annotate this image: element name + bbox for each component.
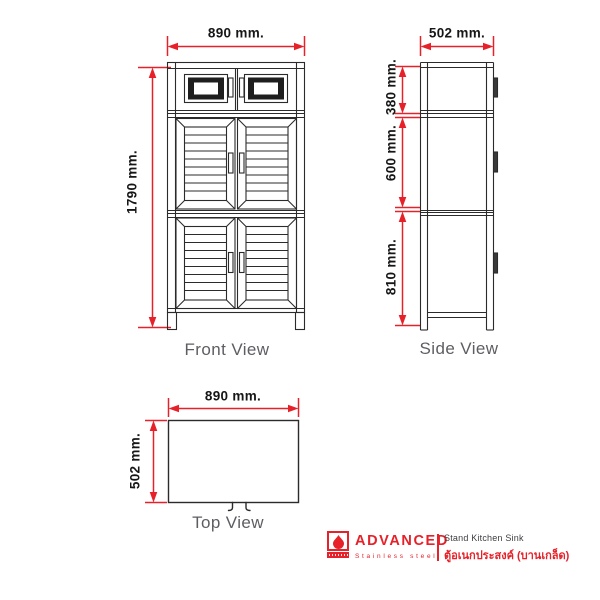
technical-drawing-page: 890 mm. 1790 mm. 502 mm. 380 mm. 600 mm.… (0, 0, 600, 600)
brand-name: ADVANCED (355, 533, 449, 549)
side-handle-lower (494, 253, 498, 273)
middle-door-handle-right (240, 153, 245, 173)
flame-icon (332, 534, 345, 549)
top-depth-dimension-arrow (145, 421, 167, 503)
product-text-block: Stand Kitchen Sink ตู้อเนกประสงค์ (บานเก… (444, 533, 569, 564)
louver-door-lower-left (176, 218, 235, 309)
brand-logo (327, 531, 349, 551)
side-lower-dimension: 810 mm. (384, 239, 399, 295)
front-height-dimension-arrow (138, 68, 171, 328)
brand-tagline: Stainless steel (355, 553, 449, 560)
glass-window-left (185, 75, 228, 103)
footer-divider (437, 534, 439, 561)
product-name-th: ตู้อเนกประสงค์ (บานเกล็ด) (444, 546, 569, 564)
lower-door-handle-right (240, 253, 245, 273)
brand-text-block: ADVANCED Stainless steel (355, 533, 449, 560)
brand-logo-bar (327, 552, 349, 558)
side-cabinet-outline (421, 63, 498, 331)
side-section-dimension-arrows (395, 67, 421, 326)
side-handle-middle (494, 152, 498, 172)
front-cabinet-outline (168, 63, 305, 330)
front-width-dimension: 890 mm. (208, 26, 264, 41)
front-leg-right (296, 313, 305, 330)
top-view-door-handles (229, 503, 251, 511)
top-view-label: Top View (192, 513, 264, 533)
louver-door-middle-right (238, 119, 297, 210)
lower-door-handle-left (229, 253, 234, 273)
upper-door-handle-right (240, 78, 245, 97)
side-handle-upper (494, 78, 498, 97)
side-upper-dimension: 380 mm. (384, 59, 399, 115)
top-depth-dimension: 502 mm. (128, 433, 143, 489)
middle-door-handle-left (229, 153, 234, 173)
side-middle-dimension: 600 mm. (384, 125, 399, 181)
louver-door-lower-right (238, 218, 297, 309)
front-view-label: Front View (185, 340, 270, 360)
top-cabinet-outline (169, 421, 299, 511)
side-view-drawing (380, 20, 540, 370)
upper-door-handle-left (229, 78, 234, 97)
side-width-dimension: 502 mm. (429, 26, 485, 41)
top-width-dimension: 890 mm. (205, 389, 261, 404)
product-name-en: Stand Kitchen Sink (444, 533, 569, 543)
front-height-dimension: 1790 mm. (125, 150, 140, 214)
louver-door-middle-left (176, 119, 235, 210)
glass-window-right (245, 75, 288, 103)
side-view-label: Side View (420, 339, 499, 359)
